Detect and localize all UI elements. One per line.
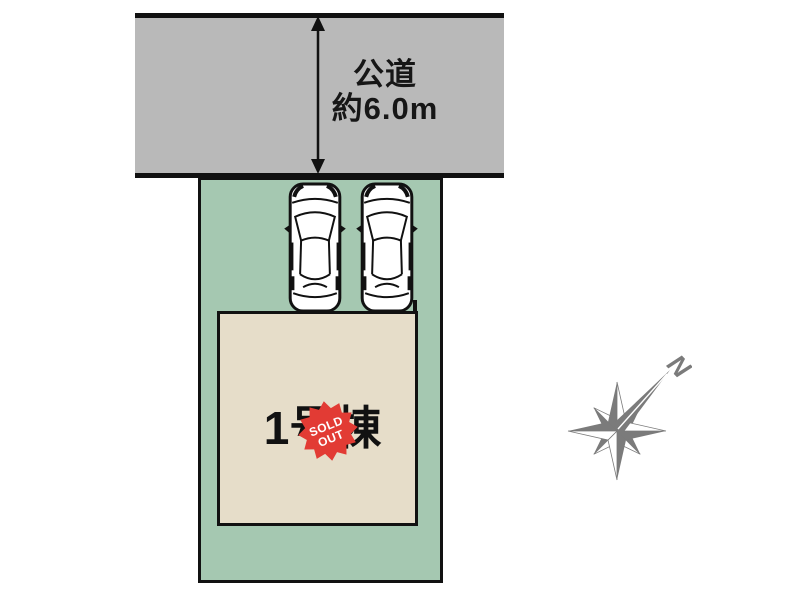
road-label-line1: 公道: [315, 58, 455, 92]
road-label: 公道 約6.0m: [315, 58, 455, 126]
car-icon: [283, 181, 347, 314]
compass-rose-icon: N: [552, 353, 692, 493]
road-label-line2: 約6.0m: [315, 92, 455, 126]
car-icon: [355, 181, 419, 314]
site-plan-diagram: 公道 約6.0m: [0, 0, 800, 600]
building-corner-notch: [413, 300, 417, 314]
sold-out-badge: SOLD OUT: [292, 395, 364, 467]
compass-north-label: N: [661, 353, 692, 384]
